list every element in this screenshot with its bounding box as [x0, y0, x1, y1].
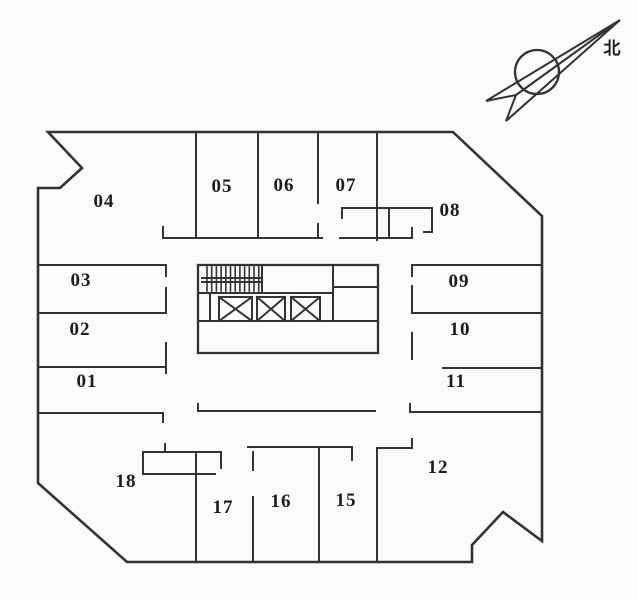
room-label-08: 08 [440, 200, 461, 221]
compass-circle [515, 50, 559, 94]
room-label-01: 01 [77, 371, 98, 392]
north-corridor-wall [163, 227, 412, 238]
compass-needle-lower [506, 20, 620, 121]
room-18-detail [143, 444, 221, 474]
room-label-05: 05 [212, 176, 233, 197]
north-label: 北 [604, 39, 621, 58]
room-label-17: 17 [213, 497, 234, 518]
room-08-detail [342, 208, 432, 238]
south-corridor-wall [198, 404, 375, 411]
room-label-03: 03 [71, 270, 92, 291]
room-label-15: 15 [336, 490, 357, 511]
west-walls [38, 265, 166, 422]
room-label-12: 12 [428, 457, 449, 478]
room-label-16: 16 [271, 491, 292, 512]
room-label-09: 09 [449, 271, 470, 292]
service-core [198, 265, 378, 353]
compass-needle-upper [486, 20, 620, 101]
room-label-07: 07 [336, 175, 357, 196]
elevator-shafts [219, 297, 320, 321]
east-walls [410, 265, 542, 412]
room-labels: 01020304050607080910111215161718 [70, 175, 471, 518]
room-label-10: 10 [450, 319, 471, 340]
room-label-18: 18 [116, 471, 137, 492]
floor-plan-page: 北 [0, 0, 638, 600]
floor-plan-drawing: 北 [0, 0, 638, 600]
room-label-04: 04 [94, 191, 115, 212]
north-compass: 北 [486, 20, 621, 121]
room-label-11: 11 [446, 371, 466, 392]
room-label-06: 06 [274, 175, 295, 196]
room-label-02: 02 [70, 319, 91, 340]
